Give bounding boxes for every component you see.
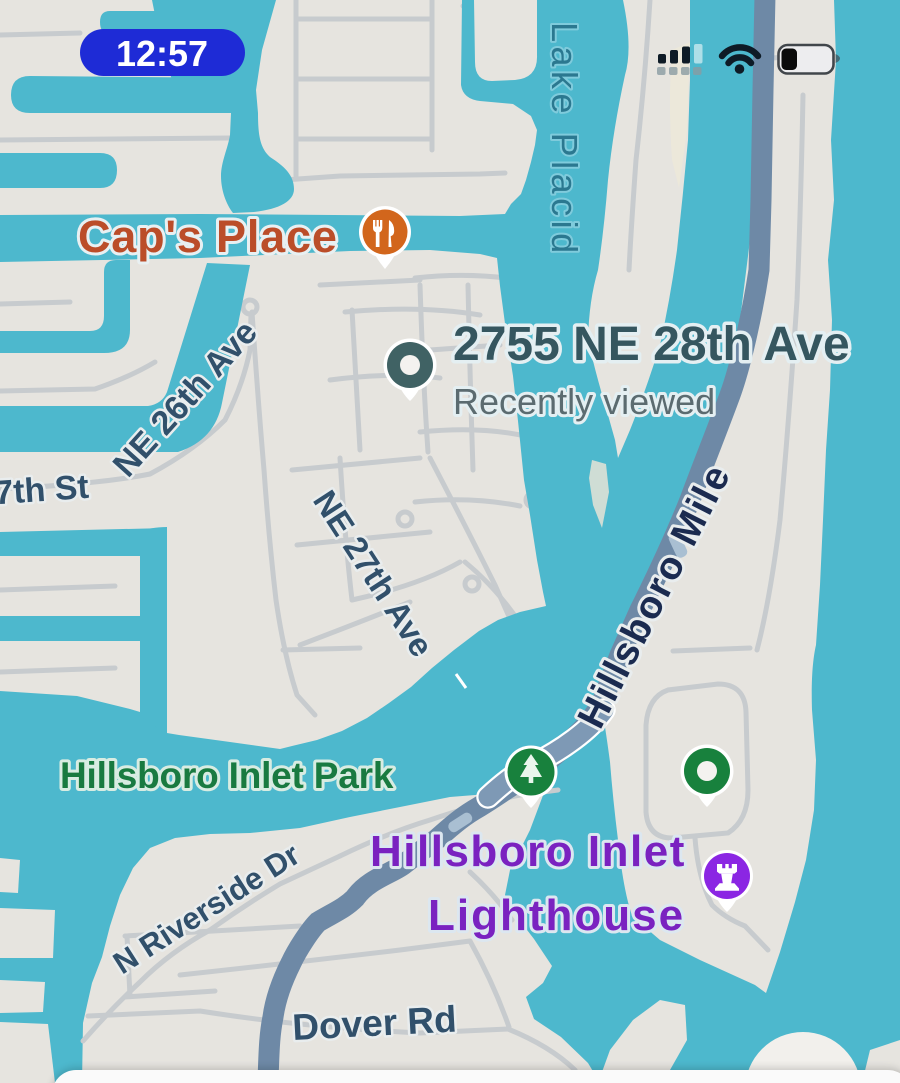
svg-text:Cap's Place: Cap's Place — [78, 211, 338, 262]
svg-text:Lake Placid: Lake Placid — [544, 22, 585, 258]
svg-text:Lighthouse: Lighthouse — [428, 891, 685, 940]
svg-text:Hillsboro Inlet: Hillsboro Inlet — [370, 827, 686, 876]
svg-text:2755 NE 28th Ave: 2755 NE 28th Ave — [453, 318, 850, 371]
svg-text:Dover Rd: Dover Rd — [291, 998, 457, 1048]
svg-text:Recently viewed: Recently viewed — [453, 381, 715, 422]
svg-text:12:57: 12:57 — [116, 33, 208, 74]
svg-text:Hillsboro Inlet Park: Hillsboro Inlet Park — [60, 755, 394, 796]
